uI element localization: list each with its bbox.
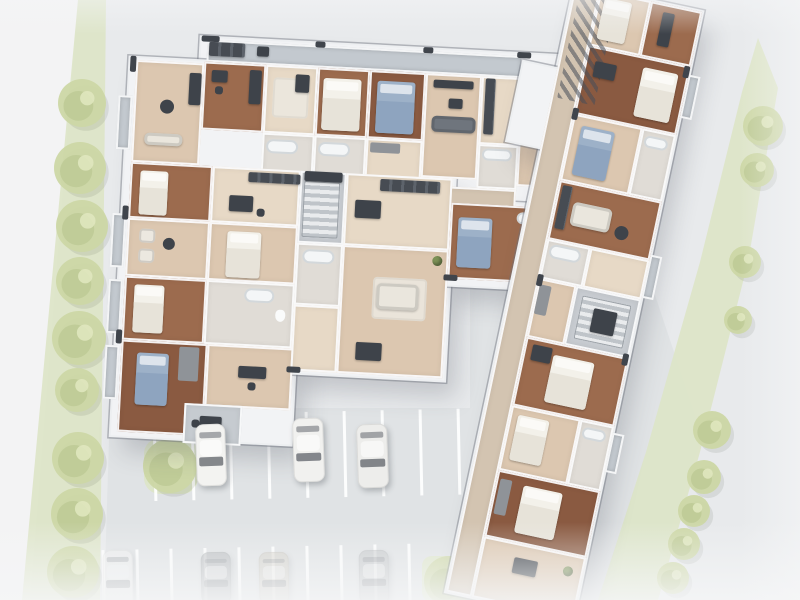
- car-roof: [360, 440, 384, 457]
- car-roof: [363, 564, 385, 578]
- car-1: [292, 417, 325, 482]
- vehicle-layer: [0, 0, 800, 600]
- car-rear-window: [205, 559, 227, 564]
- car-windshield: [199, 457, 224, 466]
- car-rear-window: [297, 426, 320, 433]
- car-windshield: [106, 580, 131, 588]
- car-4: [201, 552, 232, 600]
- car-windshield: [262, 580, 287, 587]
- site-plan: [0, 0, 800, 600]
- car-0: [195, 423, 227, 486]
- car-5: [259, 552, 290, 600]
- car-roof: [199, 440, 222, 457]
- car-6: [359, 550, 390, 600]
- car-windshield: [362, 579, 387, 586]
- car-rear-window: [263, 559, 285, 564]
- car-roof: [107, 564, 129, 579]
- car-windshield: [204, 580, 229, 587]
- car-roof: [296, 434, 320, 451]
- car-rear-window: [199, 432, 221, 438]
- car-rear-window: [361, 432, 384, 439]
- car-3: [103, 550, 134, 600]
- car-windshield: [296, 452, 322, 461]
- car-roof: [263, 565, 285, 579]
- car-rear-window: [363, 557, 385, 562]
- car-2: [356, 423, 389, 488]
- car-windshield: [360, 458, 386, 467]
- car-roof: [205, 565, 227, 579]
- car-rear-window: [107, 557, 129, 562]
